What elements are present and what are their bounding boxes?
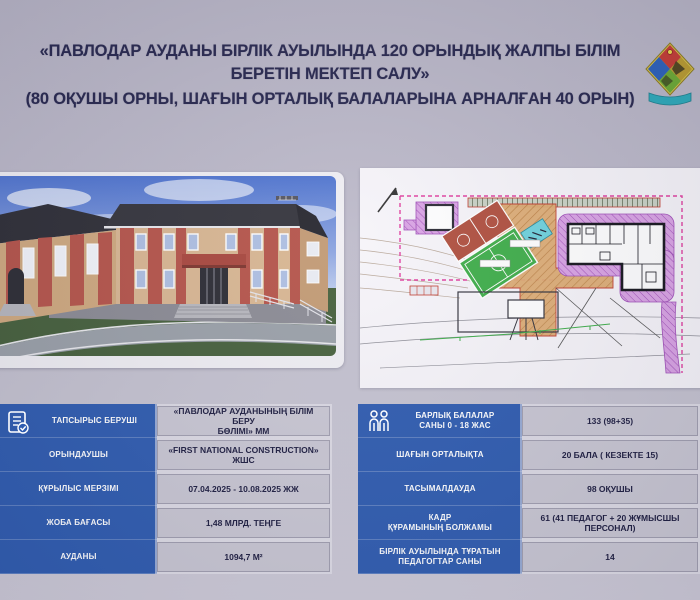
building-render-image <box>0 172 344 368</box>
table-row: КАДР ҚҰРАМЫНЫҢ БОЛЖАМЫ 61 (41 ПЕДАГОГ + … <box>358 506 700 540</box>
row-value: 14 <box>522 542 698 572</box>
table-row: ШАҒЫН ОРТАЛЫҚТА 20 БАЛА ( КЕЗЕКТЕ 15) <box>358 438 700 472</box>
table-row: ТАСЫМАЛДАУДА 98 ОҚУШЫ <box>358 472 700 506</box>
row-label: ОРЫНДАУШЫ <box>0 438 157 472</box>
row-label: ТАСЫМАЛДАУДА <box>358 472 522 506</box>
row-label: КАДР ҚҰРАМЫНЫҢ БОЛЖАМЫ <box>358 506 522 540</box>
row-label: ҚҰРЫЛЫС МЕРЗІМІ <box>0 472 157 506</box>
school-render-graphic <box>0 176 336 356</box>
site-plan-image <box>360 168 700 388</box>
row-label: ЖОБА БАҒАСЫ <box>0 506 157 540</box>
site-plan-graphic <box>360 168 700 388</box>
row-label: БІРЛІК АУЫЛЫНДА ТҰРАТЫН ПЕДАГОГТАР САНЫ <box>358 540 522 574</box>
statistics-table: БАРЛЫҚ БАЛАЛАР САНЫ 0 - 18 ЖАС 133 (98+3… <box>358 404 700 574</box>
presentation-board: «ПАВЛОДАР АУДАНЫ БІРЛІК АУЫЛЫНДА 120 ОРЫ… <box>0 0 700 600</box>
row-label: АУДАНЫ <box>0 540 157 574</box>
row-label: ШАҒЫН ОРТАЛЫҚТА <box>358 438 522 472</box>
title-line-1: «ПАВЛОДАР АУДАНЫ БІРЛІК АУЫЛЫНДА 120 ОРЫ… <box>12 40 648 63</box>
table-row: АУДАНЫ 1094,7 М² <box>0 540 332 574</box>
table-row: БІРЛІК АУЫЛЫНДА ТҰРАТЫН ПЕДАГОГТАР САНЫ … <box>358 540 700 574</box>
table-row: ОРЫНДАУШЫ «FIRST NATIONAL CONSTRUCTION» … <box>0 438 332 472</box>
title-line-3: (80 ОҚУШЫ ОРНЫ, ШАҒЫН ОРТАЛЫҚ БАЛАЛАРЫНА… <box>12 88 648 111</box>
district-crest-icon <box>645 42 695 108</box>
table-row: ҚҰРЫЛЫС МЕРЗІМІ 07.04.2025 - 10.08.2025 … <box>0 472 332 506</box>
row-value: 98 ОҚУШЫ <box>522 474 698 504</box>
row-value: 133 (98+35) <box>522 406 698 436</box>
row-value: 61 (41 ПЕДАГОГ + 20 ЖҰМЫСШЫ ПЕРСОНАЛ) <box>522 508 698 538</box>
row-value: «ПАВЛОДАР АУДАНЫНЫҢ БІЛІМ БЕРУ БӨЛІМІ» М… <box>157 406 330 436</box>
row-value: 07.04.2025 - 10.08.2025 ЖЖ <box>157 474 330 504</box>
children-icon <box>366 409 392 433</box>
row-value: 1,48 МЛРД. ТЕҢГЕ <box>157 508 330 538</box>
row-value: 1094,7 М² <box>157 542 330 572</box>
project-info-table: ТАПСЫРЫС БЕРУШІ «ПАВЛОДАР АУДАНЫНЫҢ БІЛІ… <box>0 404 332 574</box>
row-value: «FIRST NATIONAL CONSTRUCTION» ЖШС <box>157 440 330 470</box>
table-row: ТАПСЫРЫС БЕРУШІ «ПАВЛОДАР АУДАНЫНЫҢ БІЛІ… <box>0 404 332 438</box>
table-row: БАРЛЫҚ БАЛАЛАР САНЫ 0 - 18 ЖАС 133 (98+3… <box>358 404 700 438</box>
row-value: 20 БАЛА ( КЕЗЕКТЕ 15) <box>522 440 698 470</box>
title-line-2: БЕРЕТІН МЕКТЕП САЛУ» <box>12 63 648 86</box>
table-row: ЖОБА БАҒАСЫ 1,48 МЛРД. ТЕҢГЕ <box>0 506 332 540</box>
page-title: «ПАВЛОДАР АУДАНЫ БІРЛІК АУЫЛЫНДА 120 ОРЫ… <box>12 40 648 111</box>
document-check-icon <box>5 410 31 436</box>
